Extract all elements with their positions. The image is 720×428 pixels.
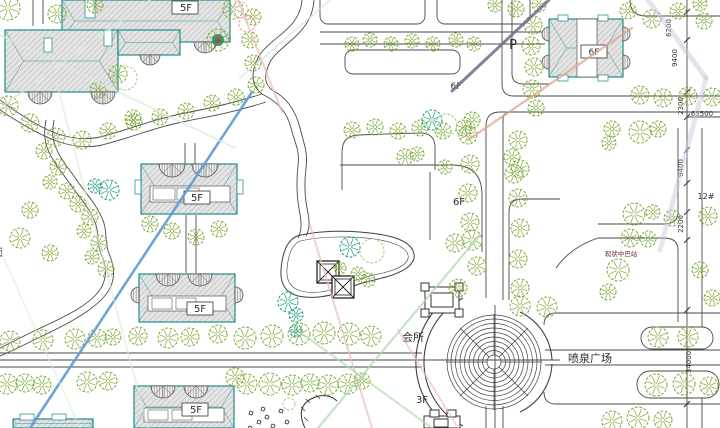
dimension-text: 2300 [677,97,685,115]
planting-island [641,327,713,349]
site-plan-svg: 6200940023009400220034000655005F5F5F5F6F… [0,0,720,428]
gazebo-structure [421,283,463,317]
cad-site-plan: 6200940023009400220034000655005F5F5F5F6F… [0,0,720,428]
dimension-text: 9400 [671,49,679,67]
bldg-4-floors-label: 5F [190,405,202,416]
parcel-6f-mid-label: 6F [453,197,465,208]
bldg-2-floors-label: 5F [191,193,203,204]
bldg-3-floors-label: 5F [194,304,206,315]
parcel-3f-label: 3F [416,395,428,406]
fountain-plaza-label: 喷泉广场 [568,351,612,365]
bldg-1-floors-label: 5F [180,3,192,14]
bus-stop-label: 现状中巴站 [605,249,638,258]
dimension-text: 34000 [685,351,693,373]
parking-label: P [509,38,517,53]
bldg-12-label: 12# [698,192,715,201]
dimension-text: 2200 [677,215,685,233]
